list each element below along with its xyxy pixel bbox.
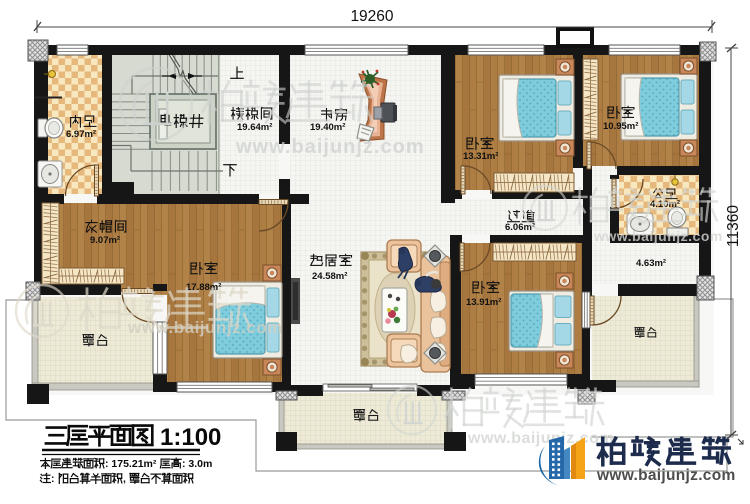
svg-text::: : bbox=[51, 473, 55, 485]
svg-text:: 3.0m: : 3.0m bbox=[182, 458, 212, 470]
svg-text:www.baijunjz.com: www.baijunjz.com bbox=[596, 467, 736, 484]
svg-text:www.baijunjz.com: www.baijunjz.com bbox=[467, 430, 614, 447]
svg-text:19.64m²: 19.64m² bbox=[237, 122, 272, 133]
svg-text:13.31m²: 13.31m² bbox=[463, 151, 498, 162]
svg-text:www.baijunjz.com: www.baijunjz.com bbox=[235, 136, 425, 158]
svg-text:9.07m²: 9.07m² bbox=[90, 235, 120, 246]
svg-text:10.95m²: 10.95m² bbox=[603, 121, 638, 132]
svg-text:19.40m²: 19.40m² bbox=[310, 122, 345, 133]
svg-text:,: , bbox=[123, 473, 126, 485]
svg-text:13.91m²: 13.91m² bbox=[466, 297, 501, 308]
svg-text:1:100: 1:100 bbox=[160, 424, 221, 451]
svg-text:: 175.21m²: : 175.21m² bbox=[105, 458, 157, 470]
svg-text:4.63m²: 4.63m² bbox=[636, 258, 666, 269]
svg-text:11360: 11360 bbox=[725, 205, 742, 247]
svg-text:6.97m²: 6.97m² bbox=[66, 129, 96, 140]
svg-text:www.baijunjz.com: www.baijunjz.com bbox=[593, 228, 723, 244]
svg-text:www.baijunjz.com: www.baijunjz.com bbox=[127, 318, 283, 337]
svg-text:19260: 19260 bbox=[350, 8, 393, 25]
svg-text:24.58m²: 24.58m² bbox=[312, 271, 347, 282]
